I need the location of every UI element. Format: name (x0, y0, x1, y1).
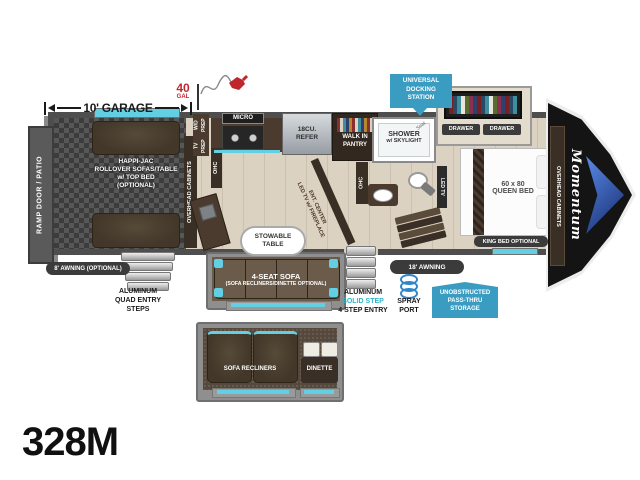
drawer-right-label: DRAWER (490, 126, 514, 133)
sofa-recliners-label: SOFA RECLINERS (202, 366, 298, 374)
dimension-line (155, 107, 179, 109)
bedroom-tv-strip: LED TV (437, 166, 447, 208)
kitchen-ohc-strip: OHC (211, 148, 222, 188)
inset-window (300, 388, 340, 398)
garage-rollover-sofa-top (92, 121, 180, 155)
bedroom-led-tv-label: LED TV (437, 166, 447, 208)
sofa-label: 4-SEAT SOFA (SOFA RECLINERS/DINETTE OPTI… (196, 272, 356, 288)
garage-dimension: 10' GARAGE (44, 100, 192, 116)
dimension-line (57, 107, 81, 109)
floorplan-328m: 10' GARAGE 40 GAL RAMP DOOR / PATIO HAPP… (0, 0, 640, 480)
tv-prep-label: TV PREP (194, 137, 209, 156)
bed-label: 60 x 80 QUEEN BED (483, 181, 543, 195)
dimension-tick-left (44, 102, 46, 115)
prep-strip: TV PREP W/D PREP (193, 114, 209, 156)
inset-window (212, 388, 296, 398)
recliner-left (207, 331, 252, 383)
window-glass (217, 390, 289, 394)
refrigerator-label: 18CU. REFER (296, 126, 318, 142)
pantry-label: WALK IN PANTRY (333, 134, 377, 149)
fuel-unit: GAL (170, 94, 196, 100)
bath-ohc-strip: OHC (356, 162, 368, 204)
fuel-capacity: 40 GAL (170, 82, 196, 100)
wardrobe-clothes (449, 96, 517, 114)
queen-bed: 60 x 80 QUEEN BED (460, 148, 554, 236)
rear-awning-pill: 8' AWNING (OPTIONAL) (46, 262, 130, 275)
pantry-shelf-items (337, 118, 375, 132)
recliner-right (253, 331, 298, 383)
ramp-door: RAMP DOOR / PATIO (28, 126, 54, 264)
bath-vanity (368, 184, 398, 206)
dimension-tick-right (190, 102, 192, 115)
wd-prep-label: W/D PREP (194, 114, 209, 137)
king-bed-option-pill: KING BED OPTIONAL (474, 236, 548, 247)
docking-station-pointer-icon (413, 108, 427, 116)
passthru-storage-badge: UNOBSTRUCTED PASS-THRU STORAGE (432, 282, 498, 318)
bath-sink (373, 189, 393, 202)
happijac-label: HAPPI-JAC ROLLOVER SOFAS/TABLE w/ TOP BE… (82, 158, 190, 191)
sofa-accent (214, 259, 223, 268)
microwave-label: MICRO (223, 114, 263, 123)
kitchen-ohc-label: OHC (211, 148, 222, 188)
bedroom-window (492, 248, 538, 255)
dimension-arrow-right-icon (181, 104, 188, 112)
prep-labels: TV PREP W/D PREP (193, 114, 209, 156)
garage-rollover-sofa-bottom (92, 213, 180, 248)
fuel-amount: 40 (170, 82, 196, 94)
window-glass (231, 303, 325, 307)
fuel-tick (197, 84, 199, 110)
sofa-accent (329, 259, 338, 268)
step (346, 246, 376, 256)
microwave: MICRO (222, 113, 264, 124)
docking-station-badge: UNIVERSAL DOCKING STATION (390, 74, 452, 108)
spray-port-hose-icon (400, 274, 416, 299)
drawer-right: DRAWER (483, 124, 521, 135)
drawer-left-label: DRAWER (449, 126, 473, 133)
shower-label: SHOWER w/ SKYLIGHT (374, 131, 434, 144)
cap-overhead-cabinets-strip: OVERHEAD CABINETS (550, 126, 565, 266)
main-awning-pill: 18' AWNING (390, 260, 464, 274)
wardrobe-closet (444, 91, 522, 119)
bath-ohc-label: OHC (356, 162, 368, 204)
slideout-window (226, 301, 332, 311)
model-number: 328M (22, 420, 118, 465)
refrigerator: 18CU. REFER (282, 113, 332, 155)
step (346, 257, 376, 267)
kitchen-counter-edge (214, 150, 280, 153)
sofa-accent (214, 288, 223, 297)
garage-dimension-label: 10' GARAGE (83, 101, 152, 115)
step (121, 252, 175, 261)
dimension-arrow-left-icon (48, 104, 55, 112)
brand-logo: Momentum (568, 120, 583, 270)
window-glass (304, 390, 334, 394)
fuel-pump-icon (200, 72, 248, 98)
stowable-table: STOWABLE TABLE (240, 226, 306, 256)
shower: SHOWER w/ SKYLIGHT Seat (372, 117, 436, 163)
ramp-door-label: RAMP DOOR / PATIO (30, 128, 52, 262)
cap-overhead-cabinets-label: OVERHEAD CABINETS (551, 127, 564, 265)
quad-steps-label: ALUMINUM QUAD ENTRY STEPS (100, 288, 176, 314)
dinette-seat (303, 342, 320, 357)
step (125, 272, 171, 281)
optional-layout-inset: SOFA RECLINERS DINETTE (196, 322, 344, 402)
kitchen-sink (199, 203, 217, 221)
spray-port-label: SPRAY PORT (388, 297, 430, 315)
dinette-label: DINETTE (301, 366, 338, 374)
step (123, 262, 173, 271)
drawer-left: DRAWER (442, 124, 480, 135)
dinette-seat (321, 342, 338, 357)
range-stove (222, 125, 264, 150)
